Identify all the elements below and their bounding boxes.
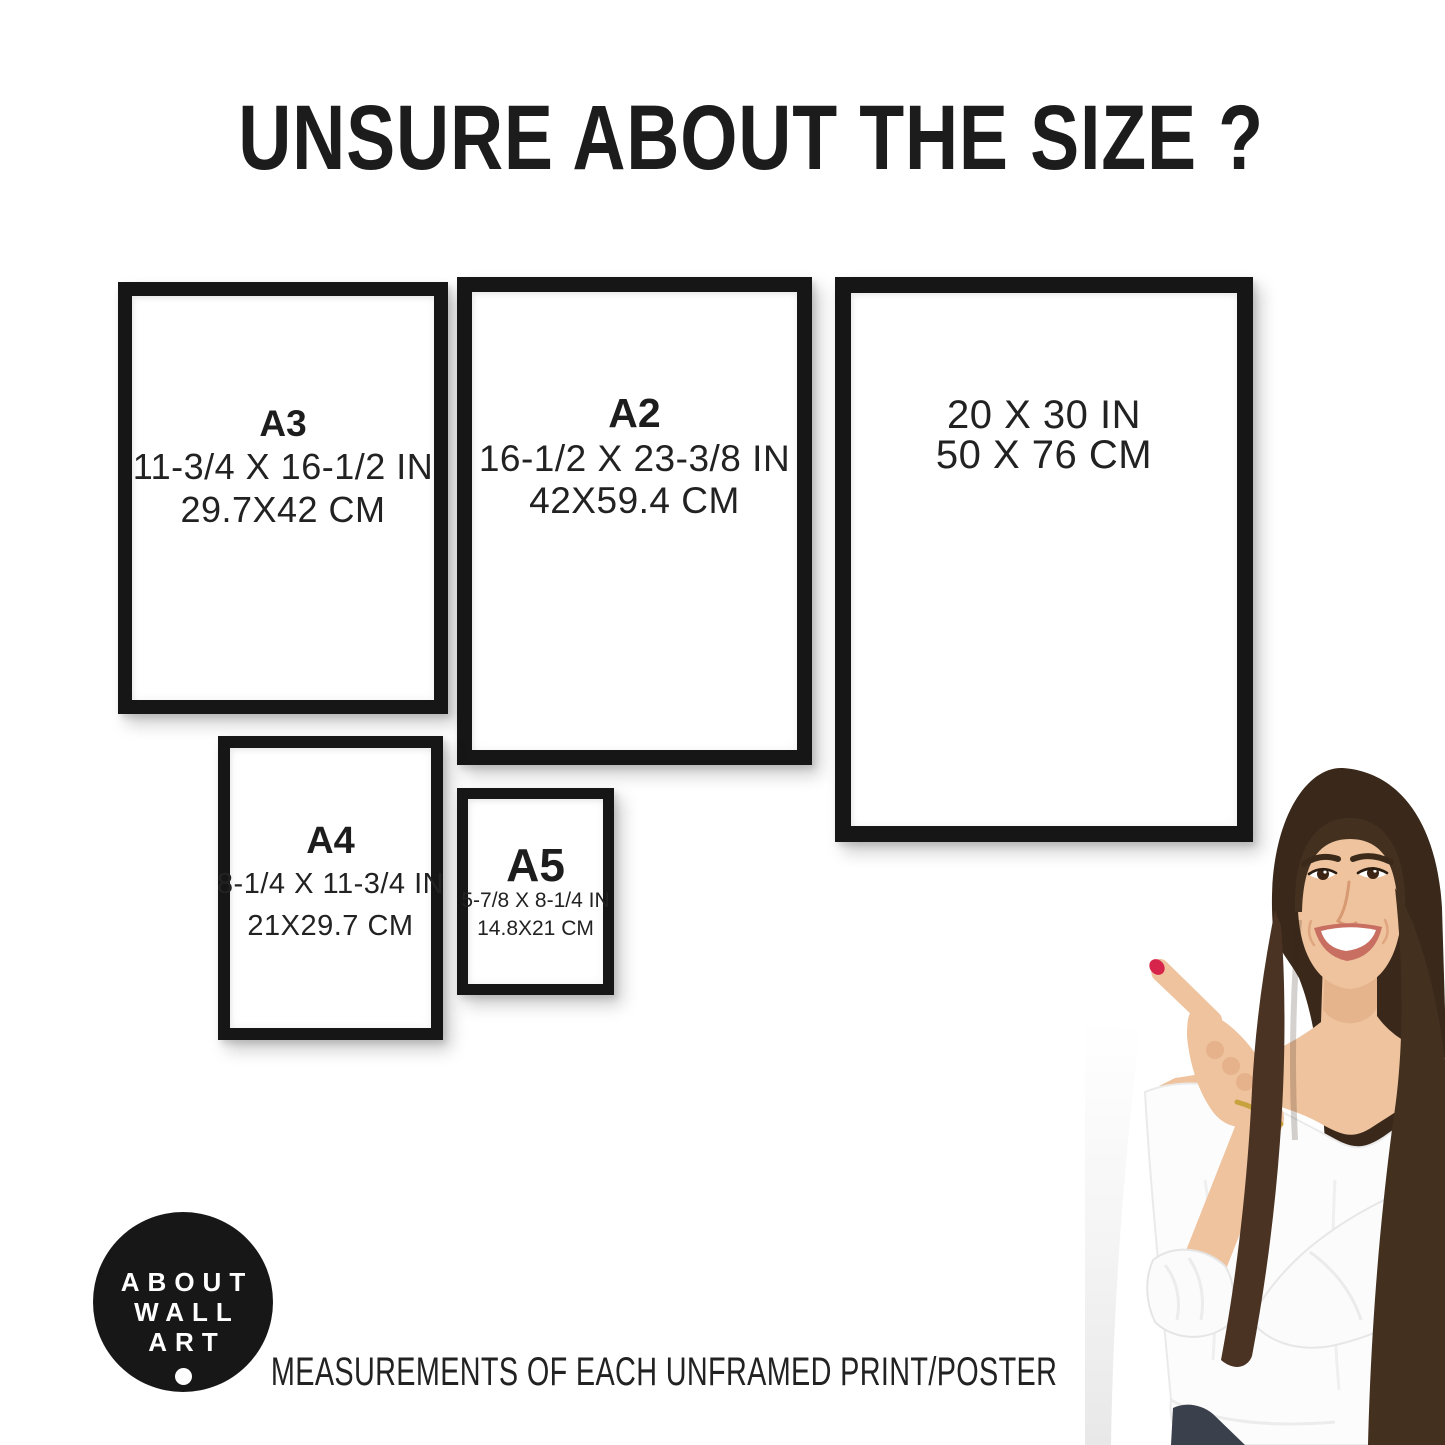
- frame-a2-size-label: A2: [608, 393, 660, 434]
- woman-pointing-illustration: [1085, 760, 1445, 1445]
- frame-a3-size-label: A3: [259, 405, 306, 442]
- frame-a5-size-inches: 5-7/8 X 8-1/4 IN: [461, 890, 609, 912]
- photo-backdrop-shadow: [1085, 1020, 1140, 1445]
- caption-text: MEASUREMENTS OF EACH UNFRAMED PRINT/POST…: [271, 1350, 1057, 1395]
- frame-a5-size-cm: 14.8X21 CM: [477, 918, 594, 940]
- frame-20x30-size-inches: 20 X 30 IN: [947, 395, 1141, 435]
- page-title-wrap: UNSURE ABOUT THE SIZE ?: [0, 86, 1445, 191]
- frame-a3-size-cm: 29.7X42 CM: [180, 488, 385, 531]
- page-title: UNSURE ABOUT THE SIZE ?: [238, 86, 1264, 191]
- logo-text-line1: ABOUT: [113, 1267, 253, 1297]
- frame-a4-size-cm: 21X29.7 CM: [247, 912, 413, 941]
- logo-text-line2: WALL: [126, 1297, 240, 1327]
- frame-a3-size-inches: 11-3/4 X 16-1/2 IN: [133, 445, 434, 488]
- frame-a5: A5 5-7/8 X 8-1/4 IN 14.8X21 CM: [457, 788, 614, 995]
- frame-20x30-size-cm: 50 X 76 CM: [936, 435, 1152, 475]
- frame-a2-size-inches: 16-1/2 X 23-3/8 IN: [479, 438, 790, 480]
- frame-20x30: 20 X 30 IN 50 X 76 CM: [835, 277, 1253, 842]
- frame-a4-size-label: A4: [306, 822, 355, 860]
- frame-a4-size-inches: 8-1/4 X 11-3/4 IN: [217, 870, 444, 899]
- frame-a2: A2 16-1/2 X 23-3/8 IN 42X59.4 CM: [457, 277, 812, 765]
- frame-a4: A4 8-1/4 X 11-3/4 IN 21X29.7 CM: [218, 736, 443, 1040]
- frame-a3: A3 11-3/4 X 16-1/2 IN 29.7X42 CM: [118, 282, 448, 714]
- frame-a5-size-label: A5: [506, 843, 565, 887]
- frame-a2-size-cm: 42X59.4 CM: [529, 480, 740, 522]
